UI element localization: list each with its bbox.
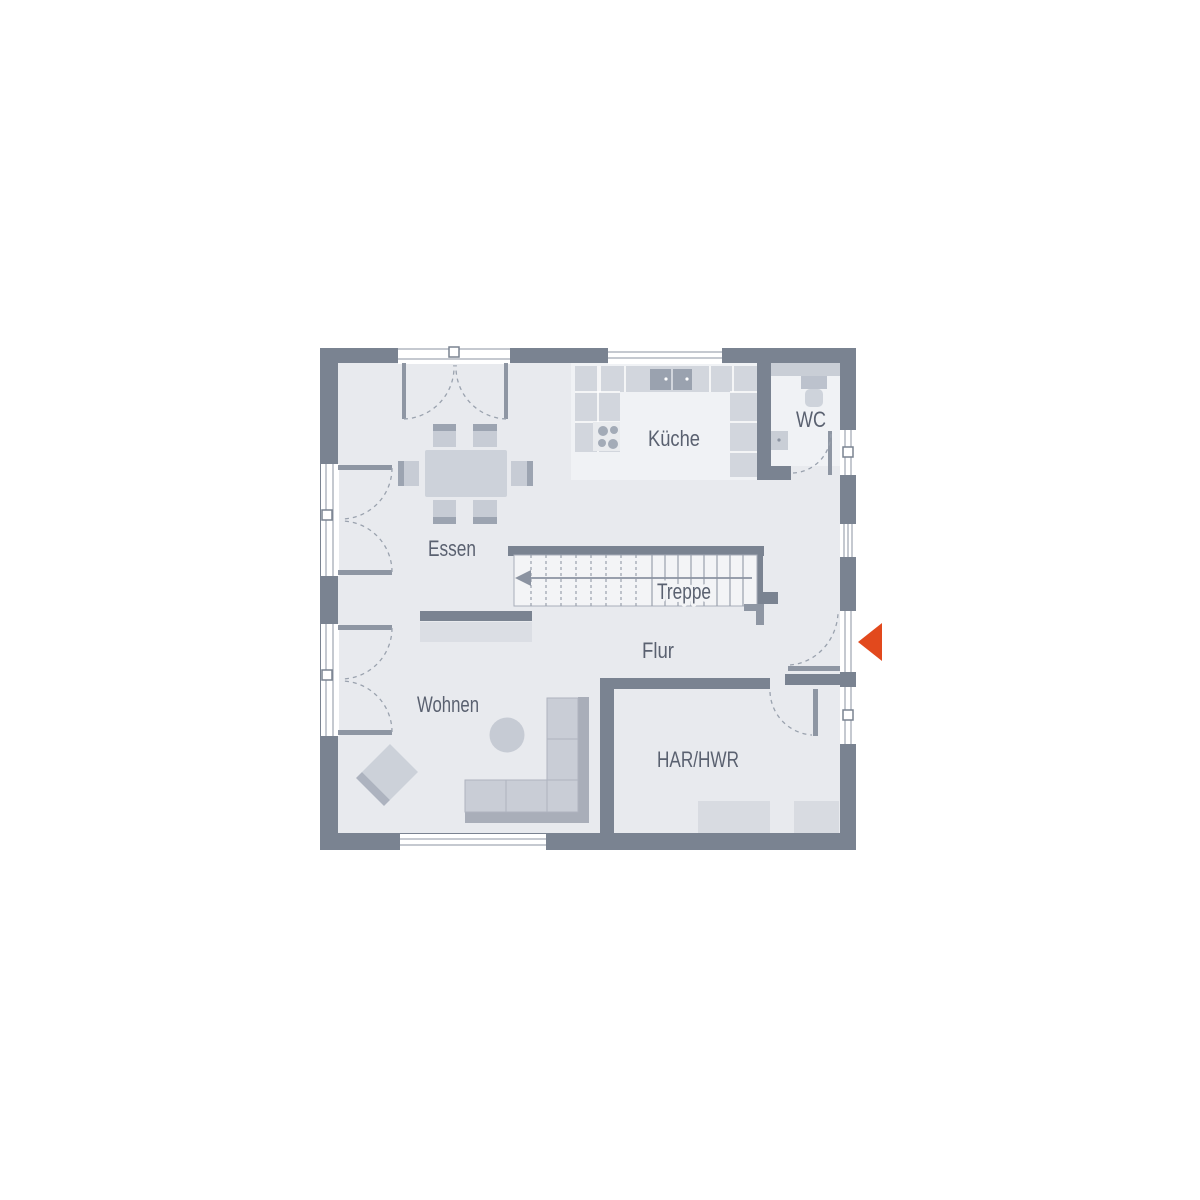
coffee-table (490, 718, 525, 753)
toilet-cistern (801, 376, 827, 389)
room-label-har-hwr: HAR/HWR (657, 747, 739, 772)
sofa-cushion (547, 698, 578, 739)
living-window-bottom (400, 834, 546, 851)
dining-chair-back (473, 517, 497, 524)
wall-divider-living (420, 611, 532, 621)
patio-door-leaf (338, 465, 392, 470)
patio-door-leaf (338, 625, 392, 630)
wc-shelf (771, 363, 840, 376)
wall-har-west (600, 678, 614, 833)
mid-window-right (840, 524, 856, 557)
door-frame (840, 611, 856, 672)
patio-door-leaf (338, 730, 392, 735)
sofa-back-vertical (578, 697, 589, 823)
window-frame (400, 834, 546, 851)
french-door-top (398, 344, 510, 364)
washer-unit (698, 801, 770, 833)
room-label-treppe: Treppe (657, 579, 711, 604)
window-frame (608, 346, 722, 364)
dining-chair-back (527, 461, 533, 486)
window-handle-icon (449, 347, 459, 357)
kitchen-sink-basin (673, 369, 692, 390)
sofa-cushion (465, 780, 506, 812)
dining-chair-back (433, 517, 456, 524)
room-label-kueche: Küche (648, 426, 700, 451)
kitchen-window-top (608, 346, 722, 364)
dining-chair-back (398, 461, 404, 486)
toilet-bowl (805, 389, 823, 407)
french-door-leaf (402, 363, 406, 419)
dining-table (425, 450, 507, 497)
room-label-essen: Essen (428, 536, 476, 561)
sofa-cushion (547, 780, 578, 812)
room-label-wc: WC (796, 407, 826, 432)
kitchen-sink-basin (650, 369, 671, 390)
window-handle-icon (322, 670, 332, 680)
sofa-cushion (547, 739, 578, 780)
wall-entrance-stub (785, 674, 840, 685)
sideboard (420, 622, 532, 642)
har-window-right (840, 687, 856, 744)
sink-drain-dot (664, 377, 667, 380)
stove-burner (610, 426, 618, 434)
sofa-cushion (506, 780, 547, 812)
stove-burner (598, 439, 606, 447)
counter-right-column (730, 392, 757, 477)
room-label-wohnen: Wohnen (417, 692, 479, 717)
wc-sink-drain-dot (777, 438, 780, 441)
wc-window-right (840, 430, 856, 475)
har-appliances (698, 801, 839, 833)
entrance-arrow-icon (858, 623, 882, 661)
window-handle-icon (843, 447, 853, 457)
sink-drain-dot (685, 377, 688, 380)
dryer-unit (794, 801, 839, 833)
floor-plan-canvas: Essen Küche WC Treppe Flur Wohnen HAR/HW… (0, 0, 1200, 1200)
har-door-leaf (813, 689, 818, 736)
wall-har-north (600, 678, 770, 689)
french-door-leaf (504, 363, 508, 419)
stove-burner (608, 439, 618, 449)
wall-wc-west (757, 363, 771, 480)
window-handle-icon (322, 510, 332, 520)
entrance-door-right (840, 611, 856, 672)
patio-door-leaf (338, 570, 392, 575)
sofa-back-horizontal (465, 812, 589, 823)
floor-plan-page: Essen Küche WC Treppe Flur Wohnen HAR/HW… (0, 0, 1200, 1200)
stairs-trim-down (756, 604, 764, 625)
stove-burner (598, 426, 608, 436)
patio-door-left-upper (321, 464, 339, 576)
wall-wc-south (757, 466, 791, 480)
entrance-door-leaf (788, 666, 840, 671)
patio-door-left-lower (321, 624, 339, 736)
room-label-flur: Flur (642, 638, 674, 663)
dining-chair-back (433, 424, 456, 431)
dining-chair-back (473, 424, 497, 431)
window-handle-icon (843, 710, 853, 720)
